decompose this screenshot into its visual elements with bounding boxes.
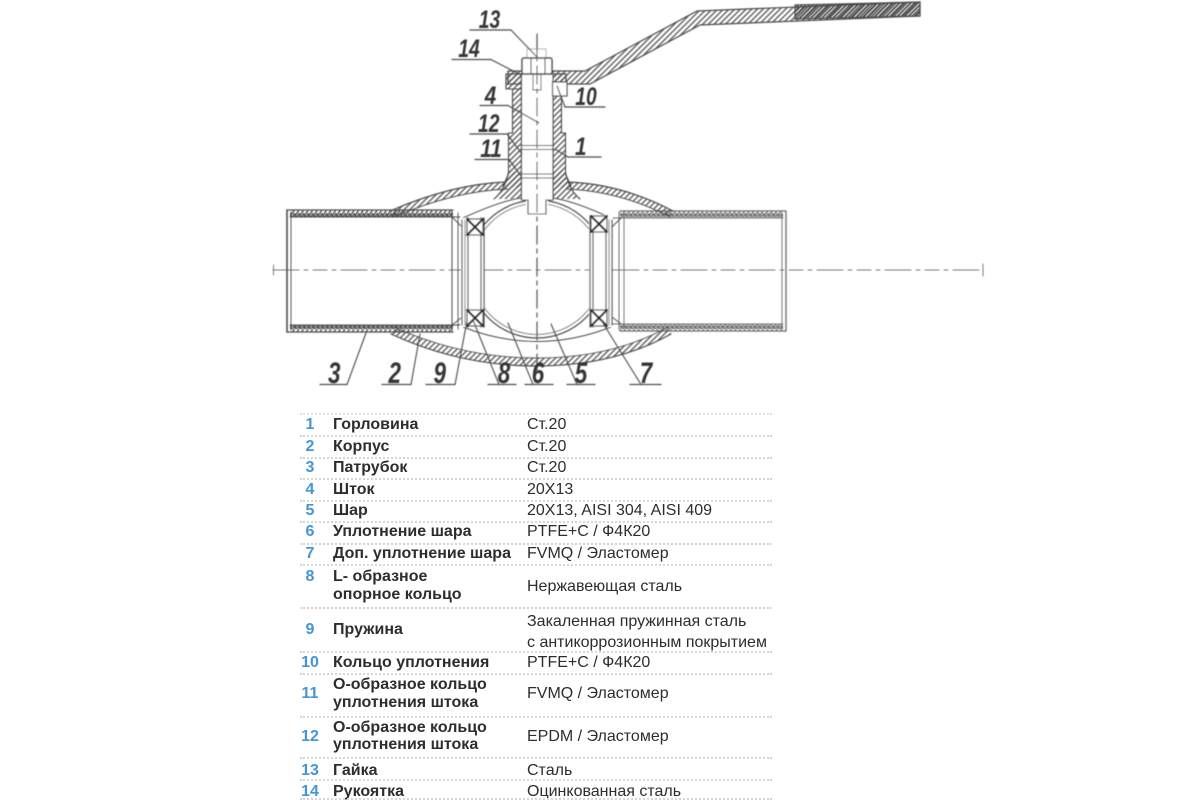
svg-text:11: 11 <box>480 135 502 163</box>
svg-text:14: 14 <box>458 35 480 63</box>
